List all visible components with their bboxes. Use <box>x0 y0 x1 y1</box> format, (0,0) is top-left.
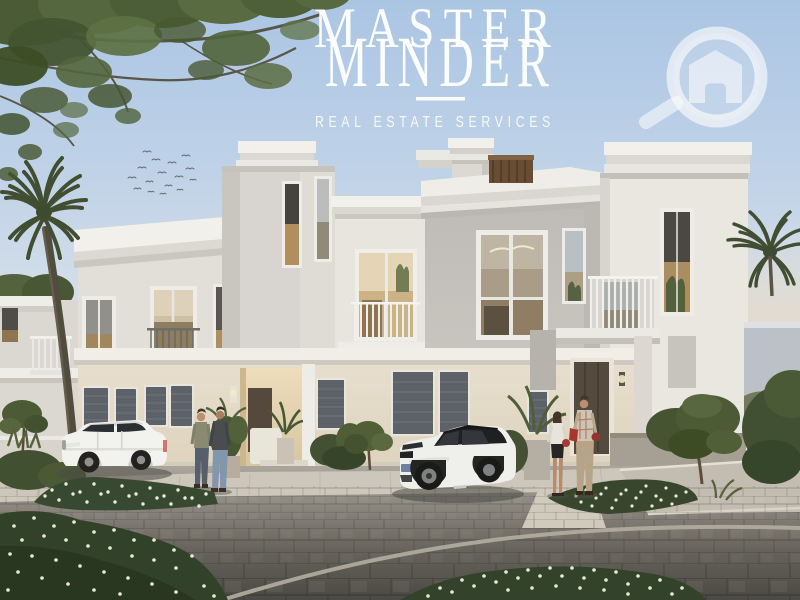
svg-text:REAL ESTATE SERVICES: REAL ESTATE SERVICES <box>315 114 555 131</box>
